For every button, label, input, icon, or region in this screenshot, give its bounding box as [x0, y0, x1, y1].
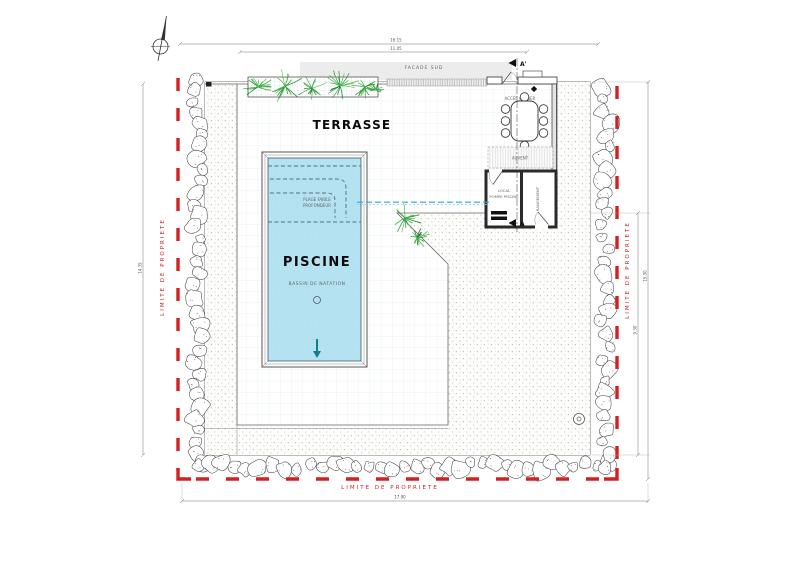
dim-right-inner: 9.30 [633, 325, 638, 334]
rangement-label: RANGEMENT [535, 186, 540, 211]
section-label-top: A' [520, 61, 527, 68]
plage-label-2: PROFONDEUR [303, 203, 331, 208]
terrasse-label: TERRASSE [313, 118, 392, 132]
limite-label-left: LIMITE DE PROPRIETE [160, 218, 166, 316]
limite-label-right: LIMITE DE PROPRIETE [625, 221, 631, 319]
local-label-2: POMPE PISCINE [489, 194, 519, 199]
limite-label-bottom: LIMITE DE PROPRIETE [341, 485, 439, 491]
bassin-label: BASSIN DE NATATION [289, 281, 346, 287]
hedge-bottom [192, 454, 616, 481]
plage-label-1: PLAGE FAIBLE [303, 197, 331, 202]
dim-bottom: 17.90 [394, 495, 406, 500]
dim-top-outer: 16.15 [390, 38, 402, 43]
section-label-bottom: A [520, 221, 525, 228]
dining-table [511, 101, 538, 141]
piscine-label: PISCINE [283, 255, 351, 270]
site-plan-drawing: FACADE SUD ACCES CELLIER AUVENT [0, 0, 800, 561]
facade-wall [387, 79, 487, 86]
auvent-label: AUVENT [512, 156, 529, 161]
garden-drain [574, 414, 585, 425]
dim-top-inner: 11.05 [390, 46, 402, 51]
dim-right-outer: 15.30 [643, 270, 648, 282]
site-plan-page: FACADE SUD ACCES CELLIER AUVENT [0, 0, 800, 561]
dim-left: 14.35 [138, 262, 143, 274]
north-arrow-icon [151, 16, 170, 61]
local-label-1: LOCAL [498, 188, 511, 193]
pump-equipment [491, 211, 507, 215]
facade-sud-label: FACADE SUD [405, 65, 444, 71]
